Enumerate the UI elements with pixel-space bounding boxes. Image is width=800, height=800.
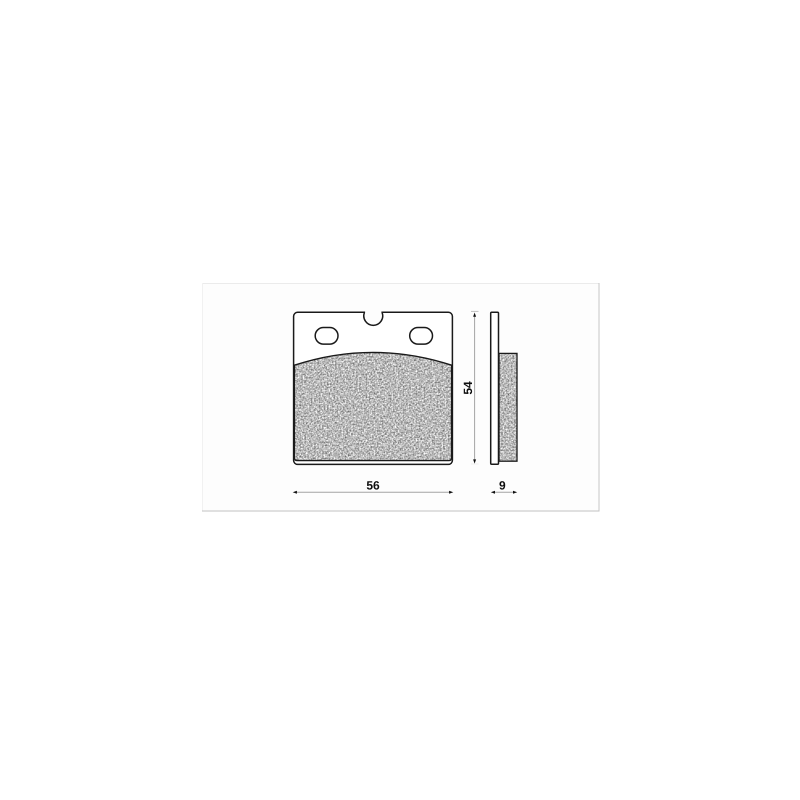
svg-text:56: 56: [366, 479, 380, 493]
svg-text:9: 9: [499, 479, 506, 493]
svg-text:54: 54: [461, 381, 475, 395]
